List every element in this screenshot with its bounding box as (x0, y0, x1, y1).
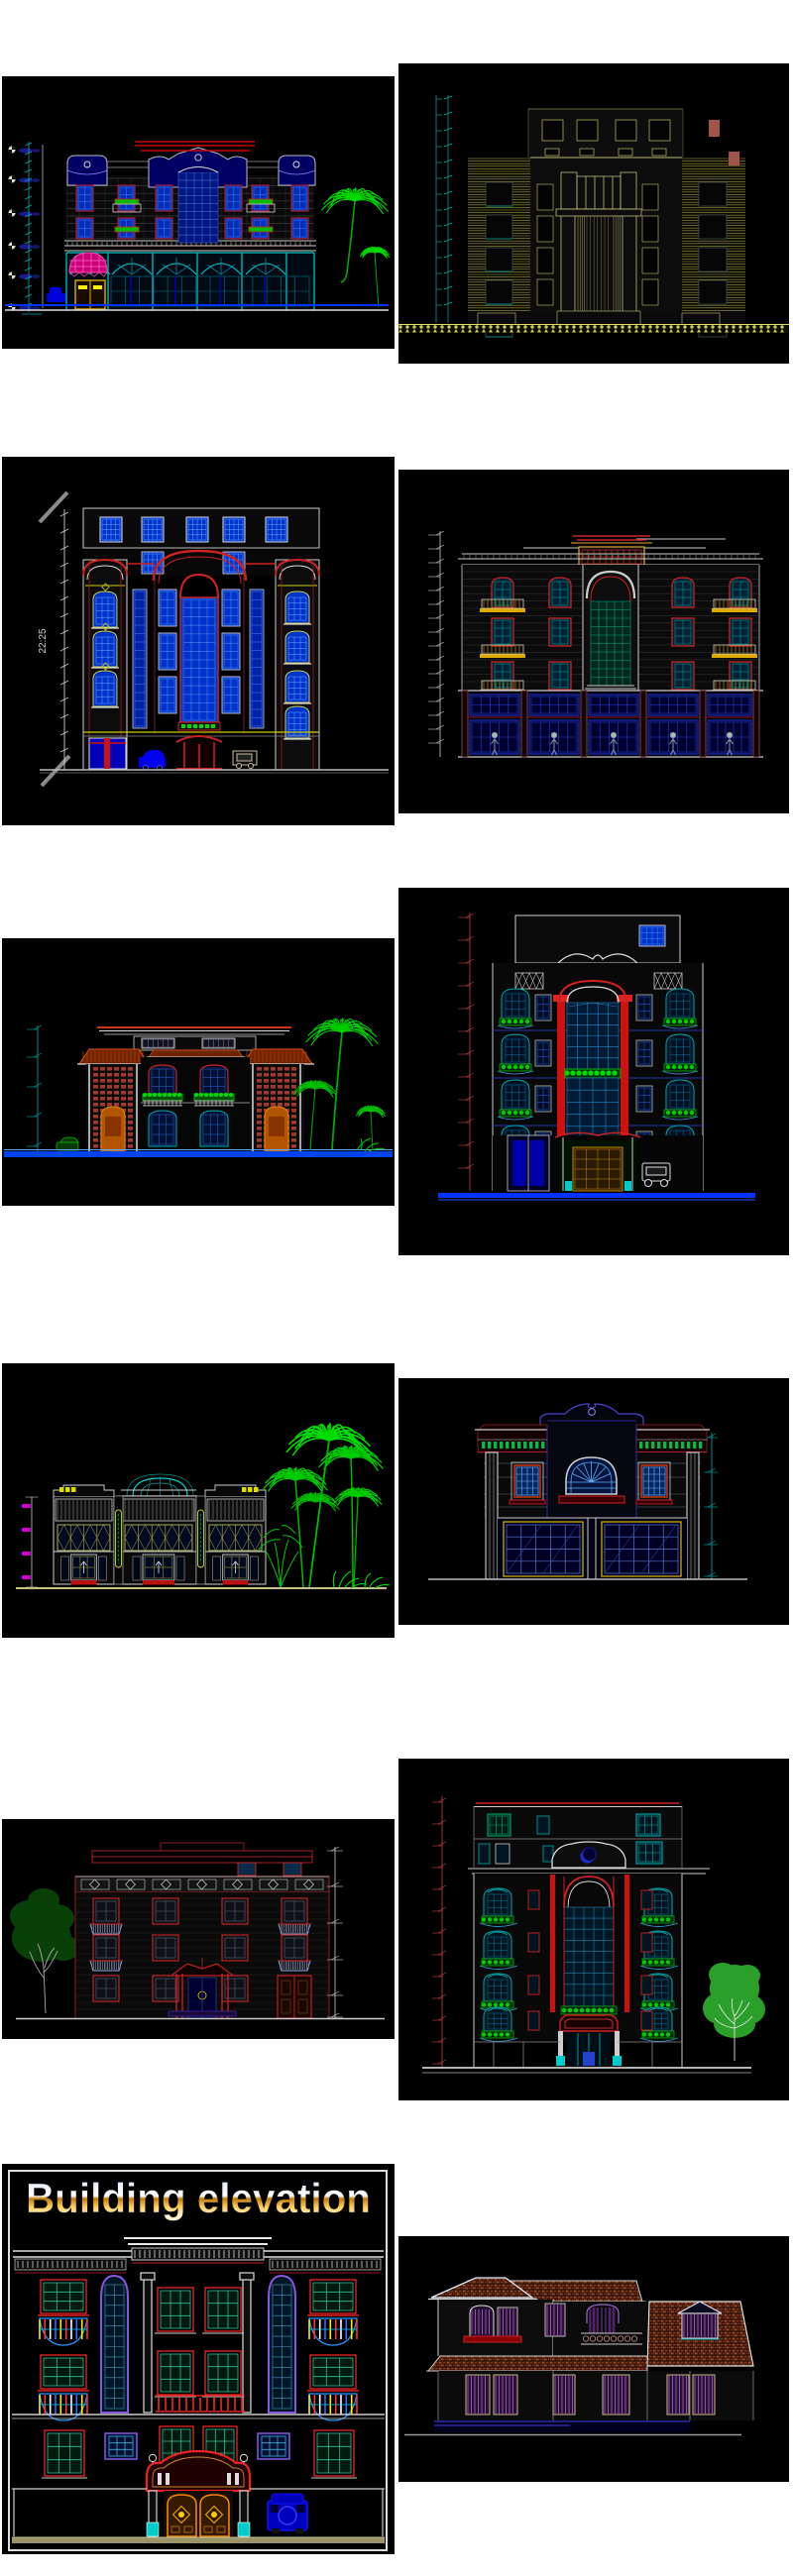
svg-text:22:25: 22:25 (38, 628, 49, 653)
svg-text:Building elevation: Building elevation (26, 2175, 371, 2221)
